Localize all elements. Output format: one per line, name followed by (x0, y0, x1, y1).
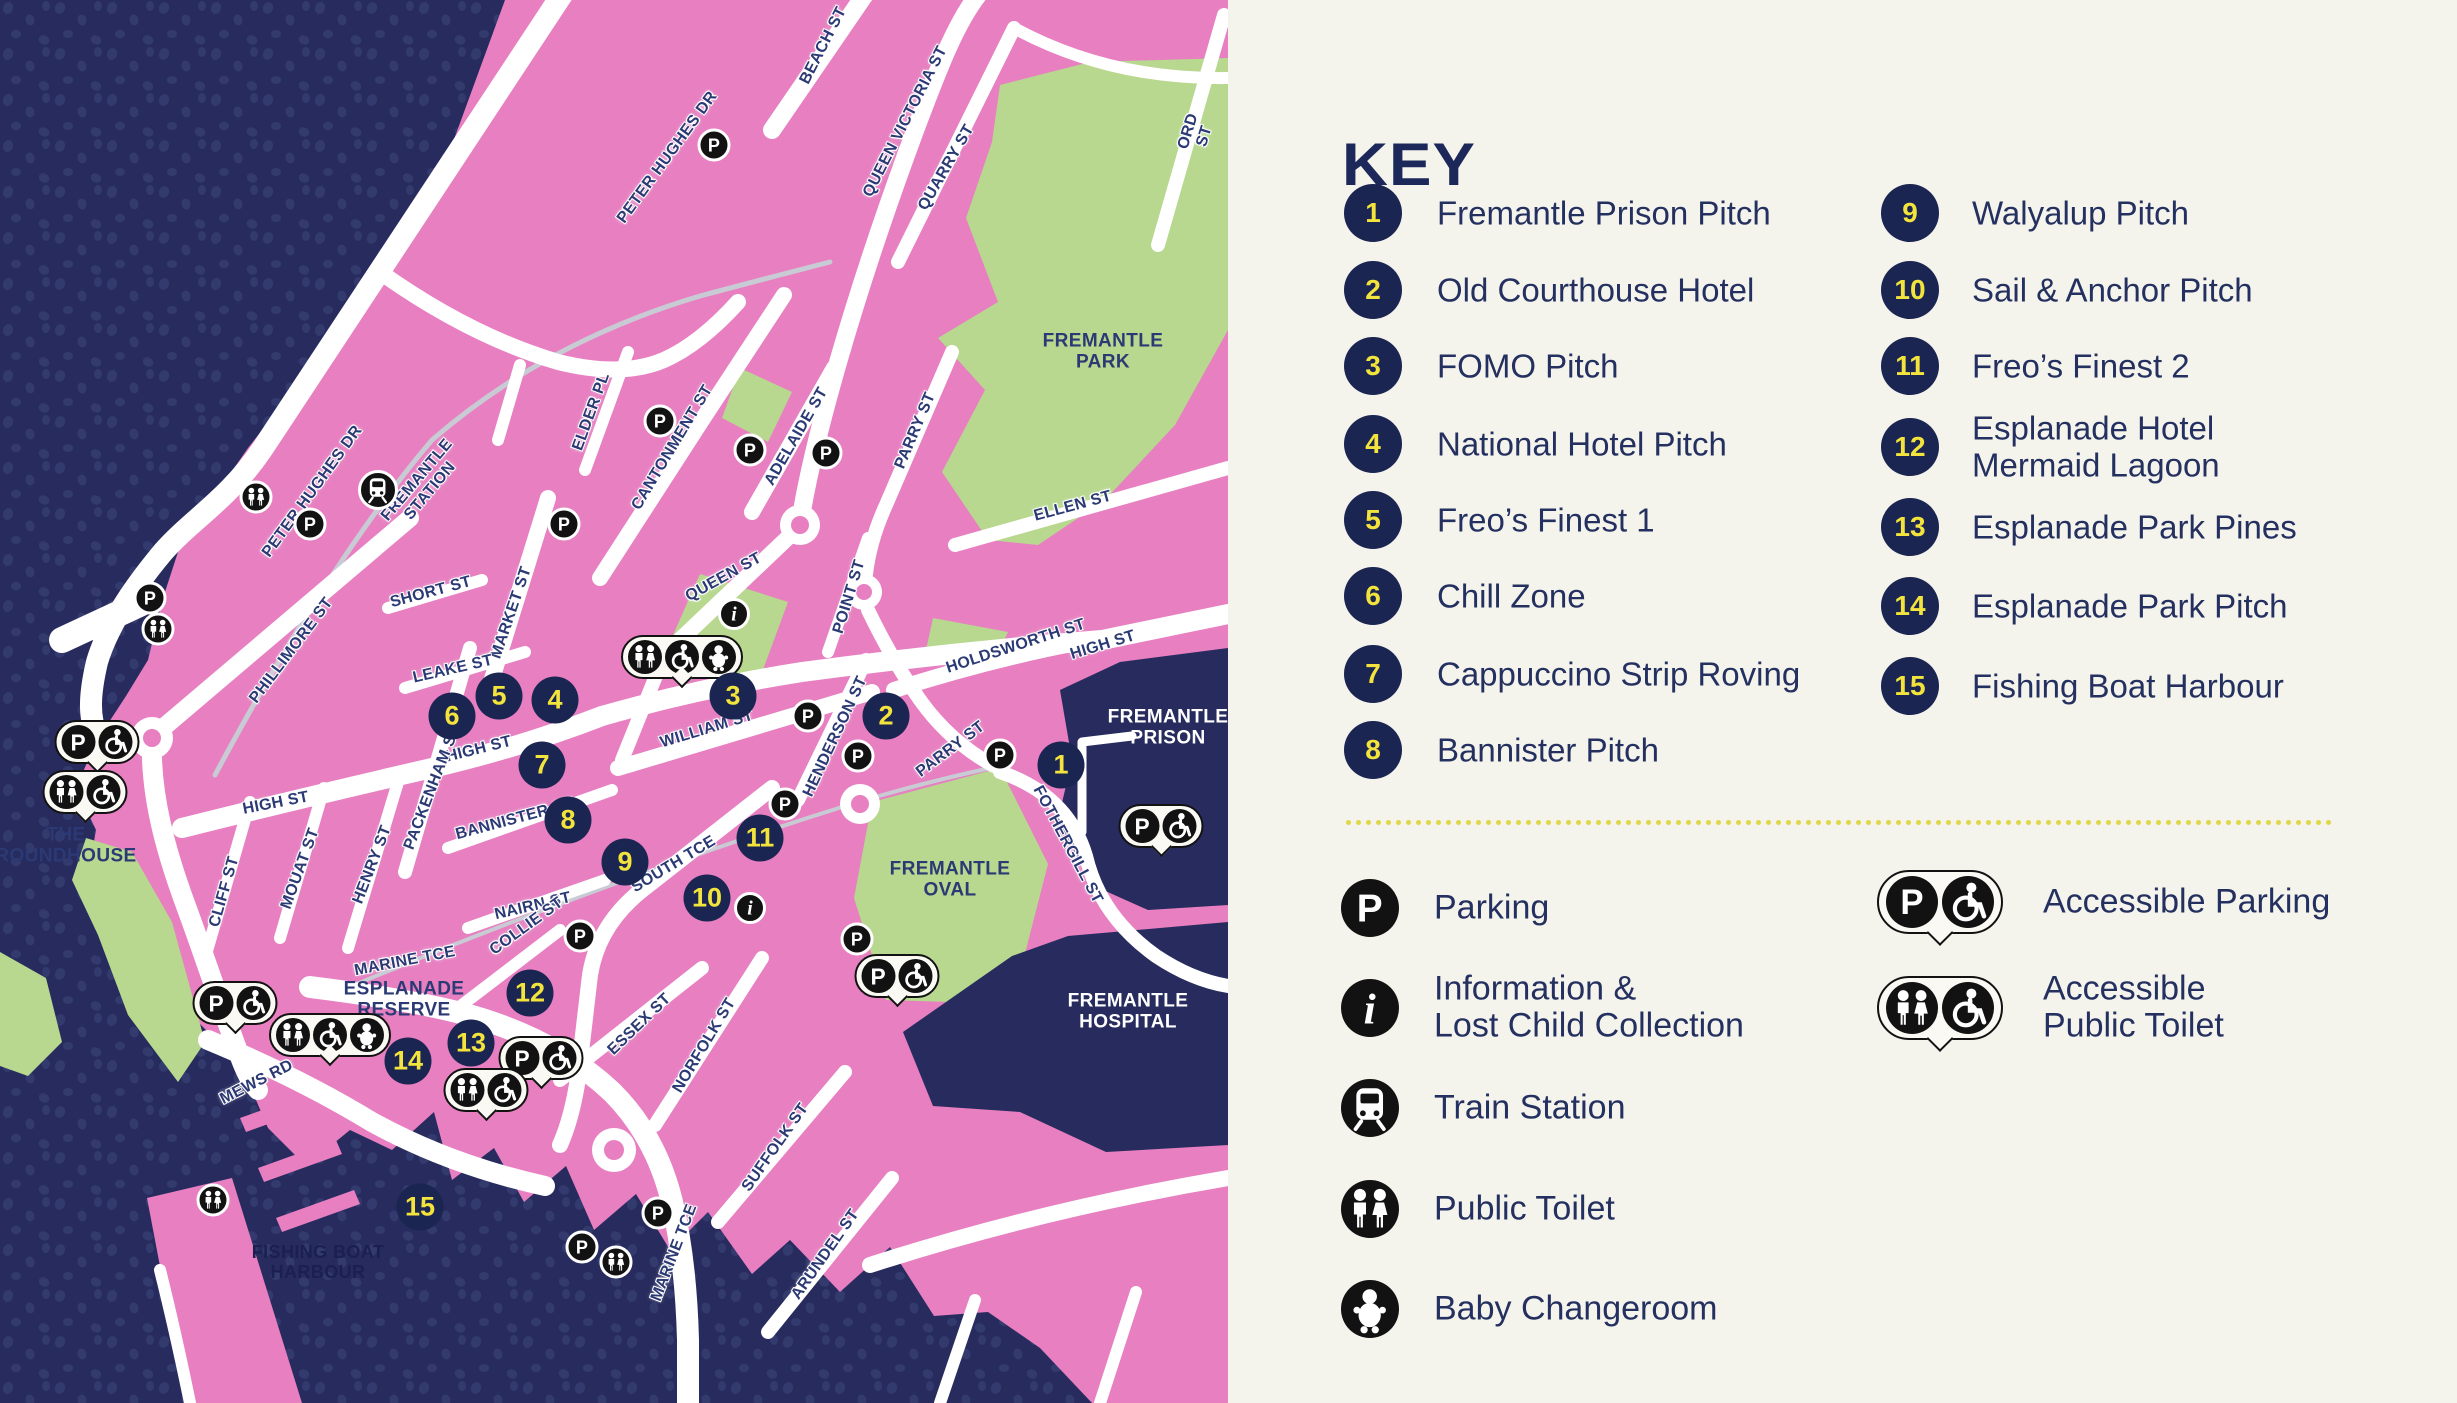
map-marker-10: 10 (684, 875, 731, 922)
street-label: MOUAT ST (279, 826, 324, 911)
legend-label: Baby Changeroom (1434, 1290, 1718, 1327)
p-icon (698, 129, 731, 162)
key-item-label: Fremantle Prison Pitch (1437, 194, 1771, 231)
area-label: FREMANTLE OVAL (890, 859, 1011, 902)
street-label: HENRY ST (350, 824, 395, 907)
key-item-number: 13 (1881, 498, 1939, 556)
p-icon (294, 508, 327, 541)
key-item-number: 4 (1344, 415, 1402, 473)
map-marker-14: 14 (385, 1038, 432, 1085)
p-icon (566, 1231, 599, 1264)
map-pane: FREMANTLE PARKTHE ROUNDHOUSEESPLANADE RE… (0, 0, 1228, 1403)
street-label: MARINE TCE (353, 944, 457, 980)
toilet-icon (1886, 982, 1938, 1034)
wheel-icon (87, 775, 121, 809)
train-icon (1341, 1079, 1399, 1137)
street-label: PARRY ST (892, 390, 939, 471)
street-label: HOLDSWORTH ST (944, 617, 1087, 678)
map-marker-9: 9 (602, 839, 649, 886)
toilet-icon (276, 1018, 310, 1052)
map-icon-bubble (621, 635, 743, 679)
wheel-icon (488, 1073, 522, 1107)
p-icon (564, 920, 597, 953)
key-item-number: 6 (1344, 567, 1402, 625)
area-label: FREMANTLE PARK (1043, 331, 1164, 374)
info-icon (734, 892, 766, 924)
street-label: ESSEX ST (605, 991, 675, 1059)
legend-label: Accessible Public Toilet (2043, 971, 2224, 1046)
key-item-label: National Hotel Pitch (1437, 425, 1727, 462)
toilet-icon (197, 1184, 230, 1217)
area-label: FISHING BOAT HARBOUR (252, 1242, 384, 1282)
p-icon (1341, 879, 1399, 937)
street-label: SUFFOLK ST (739, 1101, 812, 1195)
map-marker-8: 8 (545, 797, 592, 844)
toilet-icon (240, 481, 273, 514)
street-label: CANTONMENT ST (629, 383, 717, 514)
key-item-label: Chill Zone (1437, 577, 1586, 614)
p-icon (200, 986, 234, 1020)
map-icon-bubble (43, 770, 128, 814)
area-label: THE ROUNDHOUSE (0, 825, 137, 868)
map-icon-bubble (444, 1068, 529, 1112)
street-label: PHILLIMORE ST (247, 595, 337, 707)
map-icon-bubble (855, 954, 940, 998)
street-label: ORD ST (1176, 112, 1219, 157)
map-marker-3: 3 (710, 673, 757, 720)
p-icon (134, 582, 167, 615)
info-icon (718, 598, 750, 630)
street-label: FOTHERGILL ST (1029, 783, 1105, 906)
p-icon (769, 788, 802, 821)
toilet-icon (142, 613, 175, 646)
map-marker-6: 6 (429, 693, 476, 740)
key-item-number: 11 (1881, 337, 1939, 395)
p-icon (62, 725, 96, 759)
key-item-number: 15 (1881, 657, 1939, 715)
key-item-label: Esplanade Hotel Mermaid Lagoon (1972, 410, 2220, 485)
street-label: BEACH ST (797, 5, 850, 88)
key-panel: KEY 1Fremantle Prison Pitch2Old Courthou… (1228, 0, 2457, 1403)
map-marker-13: 13 (448, 1020, 495, 1067)
p-icon (984, 739, 1017, 772)
info-icon (1341, 979, 1399, 1037)
map-marker-7: 7 (519, 742, 566, 789)
toilet-icon (451, 1073, 485, 1107)
street-label: MARKET ST (488, 565, 535, 661)
key-item-number: 1 (1344, 184, 1402, 242)
street-label: ELLEN ST (1032, 489, 1113, 526)
p-icon (734, 434, 767, 467)
street-label: ELDER PL (570, 371, 614, 453)
key-item-label: Fishing Boat Harbour (1972, 667, 2284, 704)
map-marker-2: 2 (863, 693, 910, 740)
street-label: MEWS RD (218, 1057, 296, 1108)
key-item-number: 12 (1881, 418, 1939, 476)
legend-label: Public Toilet (1434, 1190, 1615, 1227)
street-label: HIGH ST (242, 789, 311, 818)
wheel-icon (665, 640, 699, 674)
toilet-icon (600, 1246, 633, 1279)
p-icon (644, 405, 677, 438)
area-label: FREMANTLE HOSPITAL (1068, 991, 1189, 1034)
p-icon (862, 959, 896, 993)
baby-icon (1341, 1280, 1399, 1338)
street-label: QUARRY ST (916, 122, 979, 214)
map-icon-bubble (193, 981, 278, 1025)
dotted-divider (1346, 820, 2332, 825)
map-marker-15: 15 (397, 1184, 444, 1231)
map-marker-11: 11 (737, 815, 784, 862)
street-label: QUEEN ST (683, 550, 765, 606)
key-item-label: Bannister Pitch (1437, 731, 1659, 768)
legend-label: Information & Lost Child Collection (1434, 971, 1744, 1046)
p-icon (792, 700, 825, 733)
key-item-label: Walyalup Pitch (1972, 194, 2189, 231)
street-label: NORFOLK ST (670, 996, 740, 1096)
key-item-number: 10 (1881, 261, 1939, 319)
toilet-icon (628, 640, 662, 674)
key-item-label: Esplanade Park Pines (1972, 508, 2297, 545)
wheel-icon (313, 1018, 347, 1052)
key-item-number: 7 (1344, 645, 1402, 703)
key-item-number: 14 (1881, 577, 1939, 635)
key-item-label: Sail & Anchor Pitch (1972, 271, 2253, 308)
toilet-icon (50, 775, 84, 809)
key-item-number: 9 (1881, 184, 1939, 242)
street-label: SHORT ST (389, 574, 474, 612)
key-item-label: FOMO Pitch (1437, 347, 1619, 384)
wheel-icon (1942, 982, 1994, 1034)
wheel-icon (1942, 876, 1994, 928)
wheel-icon (543, 1041, 577, 1075)
train-icon (358, 470, 398, 510)
map-icon-bubble (55, 720, 140, 764)
legend-label: Accessible Parking (2043, 883, 2330, 920)
key-item-number: 2 (1344, 261, 1402, 319)
legend-icon-bubble (1877, 870, 2003, 934)
street-label: ARUNDEL ST (789, 1207, 863, 1303)
map-icon-bubble (1119, 804, 1204, 848)
street-label: PARRY ST (914, 719, 989, 781)
p-icon (548, 508, 581, 541)
p-icon (642, 1197, 675, 1230)
baby-icon (350, 1018, 384, 1052)
street-label: HENDERSON ST (801, 674, 871, 800)
map-marker-5: 5 (476, 673, 523, 720)
p-icon (842, 740, 875, 773)
map-marker-1: 1 (1038, 742, 1085, 789)
baby-icon (702, 640, 736, 674)
p-icon (1126, 809, 1160, 843)
wheel-icon (99, 725, 133, 759)
legend-label: Train Station (1434, 1089, 1626, 1126)
street-label: CLIFF ST (207, 855, 243, 929)
key-item-number: 5 (1344, 491, 1402, 549)
key-item-label: Cappuccino Strip Roving (1437, 655, 1800, 692)
map-marker-4: 4 (532, 677, 579, 724)
legend-icon-bubble (1877, 976, 2003, 1040)
wheel-icon (899, 959, 933, 993)
key-item-label: Old Courthouse Hotel (1437, 271, 1754, 308)
wheel-icon (237, 986, 271, 1020)
key-item-number: 3 (1344, 337, 1402, 395)
fremantle-event-map: FREMANTLE PARKTHE ROUNDHOUSEESPLANADE RE… (0, 0, 2457, 1403)
legend-label: Parking (1434, 889, 1549, 926)
p-icon (810, 437, 843, 470)
key-item-label: Freo’s Finest 2 (1972, 347, 2190, 384)
map-marker-12: 12 (507, 970, 554, 1017)
key-item-label: Freo’s Finest 1 (1437, 501, 1655, 538)
map-overlays: FREMANTLE PARKTHE ROUNDHOUSEESPLANADE RE… (0, 0, 1228, 1403)
street-label: PETER HUGHES DR (260, 423, 367, 561)
key-item-label: Esplanade Park Pitch (1972, 587, 2288, 624)
key-item-number: 8 (1344, 721, 1402, 779)
toilet-icon (1341, 1180, 1399, 1238)
wheel-icon (1163, 809, 1197, 843)
area-label: FREMANTLE PRISON (1108, 707, 1228, 750)
street-label: POINT ST (831, 558, 869, 636)
p-icon (841, 923, 874, 956)
p-icon (1886, 876, 1938, 928)
map-icon-bubble (269, 1013, 391, 1057)
